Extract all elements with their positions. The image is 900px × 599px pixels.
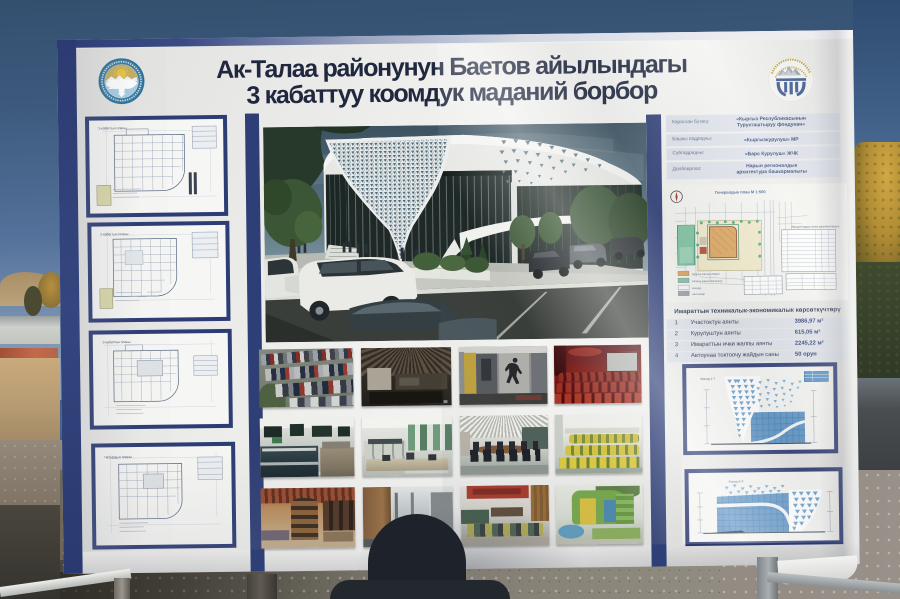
svg-text:аянтчалар: аянтчалар [692,293,705,296]
svg-text:курулуп жаткан имарат: курулуп жаткан имарат [692,273,721,276]
svg-text:1-кабаттын планы: 1-кабаттын планы [98,126,127,130]
svg-text:Чатырдын планы: Чатырдын планы [104,455,132,459]
svg-text:Фасад А-Л: Фасад А-Л [729,479,744,483]
svg-text:3-кабаттын планы: 3-кабаттын планы [103,340,132,344]
svg-text:Фасад 1-7: Фасад 1-7 [700,377,715,381]
svg-text:жолдор: жолдор [692,287,702,290]
svg-text:2-кабаттын планы: 2-кабаттын планы [100,232,129,236]
svg-text:көгөрүү-жашылдандыруу: көгөрүү-жашылдандыруу [692,280,723,283]
svg-text:Имараттардын жана курулмаларды: Имараттардын жана курулмалардын [791,224,839,229]
